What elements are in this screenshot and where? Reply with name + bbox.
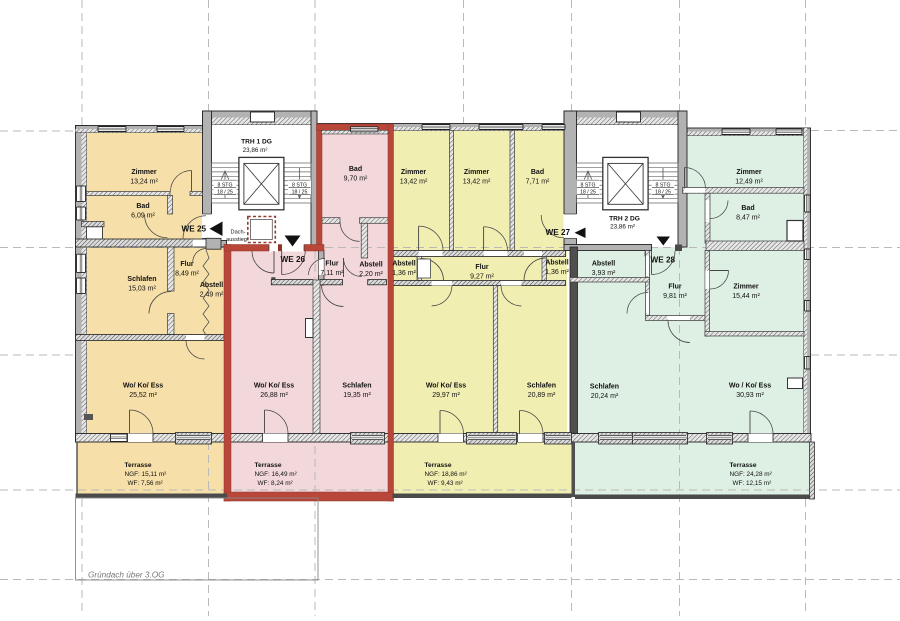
svg-text:Flur: Flur [668, 284, 681, 291]
svg-text:Wo/ Ko/ Ess: Wo/ Ko/ Ess [426, 383, 466, 390]
svg-text:13,42 m²: 13,42 m² [400, 179, 428, 186]
svg-text:Schlafen: Schlafen [342, 383, 371, 390]
svg-text:1,36 m²: 1,36 m² [392, 270, 416, 277]
svg-text:WF: 12,15 m²: WF: 12,15 m² [733, 480, 772, 487]
svg-text:19,35 m²: 19,35 m² [343, 392, 371, 399]
svg-text:NGF: 15,11 m²: NGF: 15,11 m² [125, 471, 167, 478]
svg-text:7,71 m²: 7,71 m² [526, 179, 550, 186]
svg-text:7,11 m²: 7,11 m² [320, 270, 344, 277]
svg-text:26,88 m²: 26,88 m² [260, 392, 288, 399]
svg-text:Abstell: Abstell [200, 282, 223, 289]
svg-text:1,36 m²: 1,36 m² [545, 269, 569, 276]
svg-text:Zimmer: Zimmer [131, 169, 157, 176]
svg-text:23,86 m²: 23,86 m² [243, 147, 268, 154]
svg-text:Bad: Bad [349, 166, 362, 173]
svg-text:Bad: Bad [531, 169, 544, 176]
svg-text:13,24 m²: 13,24 m² [130, 179, 158, 186]
svg-text:WF: 8,24 m²: WF: 8,24 m² [258, 480, 293, 487]
svg-text:8,47 m²: 8,47 m² [736, 215, 760, 222]
svg-text:30,93 m²: 30,93 m² [736, 392, 764, 399]
svg-text:TRH 1 DG: TRH 1 DG [241, 139, 272, 146]
svg-text:WF: 7,56 m²: WF: 7,56 m² [128, 480, 163, 487]
svg-text:20,24 m²: 20,24 m² [591, 393, 619, 400]
svg-text:18 / 25: 18 / 25 [580, 189, 596, 195]
svg-text:Wo/ Ko/ Ess: Wo/ Ko/ Ess [254, 383, 294, 390]
svg-text:WE 28: WE 28 [651, 256, 676, 265]
svg-text:6,09 m²: 6,09 m² [131, 213, 155, 220]
svg-text:23,86 m²: 23,86 m² [610, 224, 635, 231]
svg-text:WF: 9,43 m²: WF: 9,43 m² [428, 480, 463, 487]
svg-text:Terrasse: Terrasse [425, 462, 452, 469]
svg-text:Terrasse: Terrasse [730, 462, 757, 469]
svg-text:2,49 m²: 2,49 m² [200, 292, 224, 299]
svg-text:8 STG: 8 STG [581, 182, 596, 188]
svg-text:8 STG: 8 STG [218, 182, 233, 188]
svg-text:15,03 m²: 15,03 m² [128, 286, 156, 293]
svg-text:9,70 m²: 9,70 m² [344, 176, 368, 183]
svg-text:NGF: 24,28 m²: NGF: 24,28 m² [730, 471, 772, 478]
svg-text:20,89 m²: 20,89 m² [528, 392, 556, 399]
svg-text:Zimmer: Zimmer [464, 169, 490, 176]
svg-text:3,93 m²: 3,93 m² [592, 270, 616, 277]
svg-text:18 / 25: 18 / 25 [292, 189, 308, 195]
svg-text:Schlafen: Schlafen [527, 383, 556, 390]
svg-text:12,49 m²: 12,49 m² [735, 179, 763, 186]
svg-text:Gründach über 3.OG: Gründach über 3.OG [88, 571, 165, 580]
svg-text:WE 26: WE 26 [281, 255, 306, 264]
svg-text:Terrasse: Terrasse [255, 462, 282, 469]
svg-text:15,44 m²: 15,44 m² [732, 293, 760, 300]
svg-text:Flur: Flur [180, 261, 193, 268]
svg-text:Bad: Bad [741, 205, 754, 212]
svg-text:Terrasse: Terrasse [125, 462, 152, 469]
svg-text:WE 25: WE 25 [182, 225, 207, 234]
svg-text:Abstell: Abstell [545, 260, 568, 267]
svg-text:Abstell: Abstell [392, 261, 415, 268]
svg-text:18 / 25: 18 / 25 [655, 189, 671, 195]
svg-text:Flur: Flur [475, 264, 488, 271]
svg-text:Wo / Ko/ Ess: Wo / Ko/ Ess [729, 383, 771, 390]
svg-text:Zimmer: Zimmer [733, 284, 759, 291]
svg-text:25,52 m²: 25,52 m² [129, 392, 157, 399]
svg-text:9,81 m²: 9,81 m² [663, 293, 687, 300]
svg-text:Zimmer: Zimmer [401, 169, 427, 176]
svg-text:NGF: 16,49 m²: NGF: 16,49 m² [255, 471, 297, 478]
svg-text:Zimmer: Zimmer [736, 169, 762, 176]
svg-text:Schlafen: Schlafen [590, 384, 619, 391]
svg-text:8 STG: 8 STG [656, 182, 671, 188]
svg-text:8,49 m²: 8,49 m² [175, 271, 199, 278]
svg-text:18 / 25: 18 / 25 [217, 189, 233, 195]
svg-text:Wo/ Ko/ Ess: Wo/ Ko/ Ess [123, 383, 163, 390]
svg-text:Bad: Bad [136, 203, 149, 210]
svg-text:13,42 m²: 13,42 m² [463, 179, 491, 186]
svg-text:8 STG: 8 STG [292, 182, 307, 188]
svg-text:NGF: 18,86 m²: NGF: 18,86 m² [425, 471, 467, 478]
svg-text:Abstell: Abstell [359, 262, 382, 269]
svg-text:2,20 m²: 2,20 m² [359, 271, 383, 278]
svg-text:TRH 2 DG: TRH 2 DG [609, 216, 640, 223]
svg-text:29,97 m²: 29,97 m² [432, 392, 460, 399]
svg-text:Abstell: Abstell [592, 261, 615, 268]
svg-text:WE 27: WE 27 [546, 228, 571, 237]
svg-text:Schlafen: Schlafen [127, 276, 156, 283]
svg-text:ausstieg: ausstieg [226, 237, 247, 243]
svg-text:9,27 m²: 9,27 m² [470, 274, 494, 281]
svg-text:Dach-: Dach- [231, 230, 246, 236]
svg-text:Flur: Flur [325, 261, 338, 268]
